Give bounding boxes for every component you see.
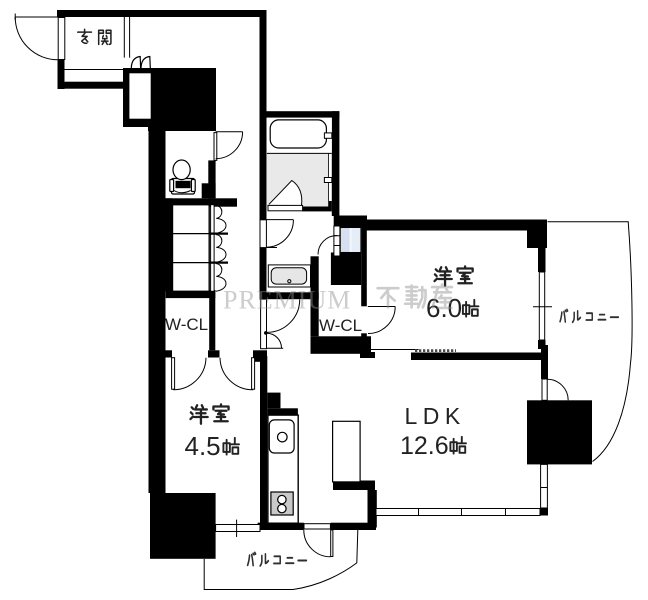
svg-text:PREMIUM: PREMIUM [223,286,351,315]
svg-text:4.5: 4.5 [185,431,221,461]
svg-text:LDK: LDK [405,403,466,429]
svg-text:W-CL: W-CL [165,315,208,334]
svg-text:W-CL: W-CL [319,316,362,335]
svg-text:12.6: 12.6 [400,432,449,460]
